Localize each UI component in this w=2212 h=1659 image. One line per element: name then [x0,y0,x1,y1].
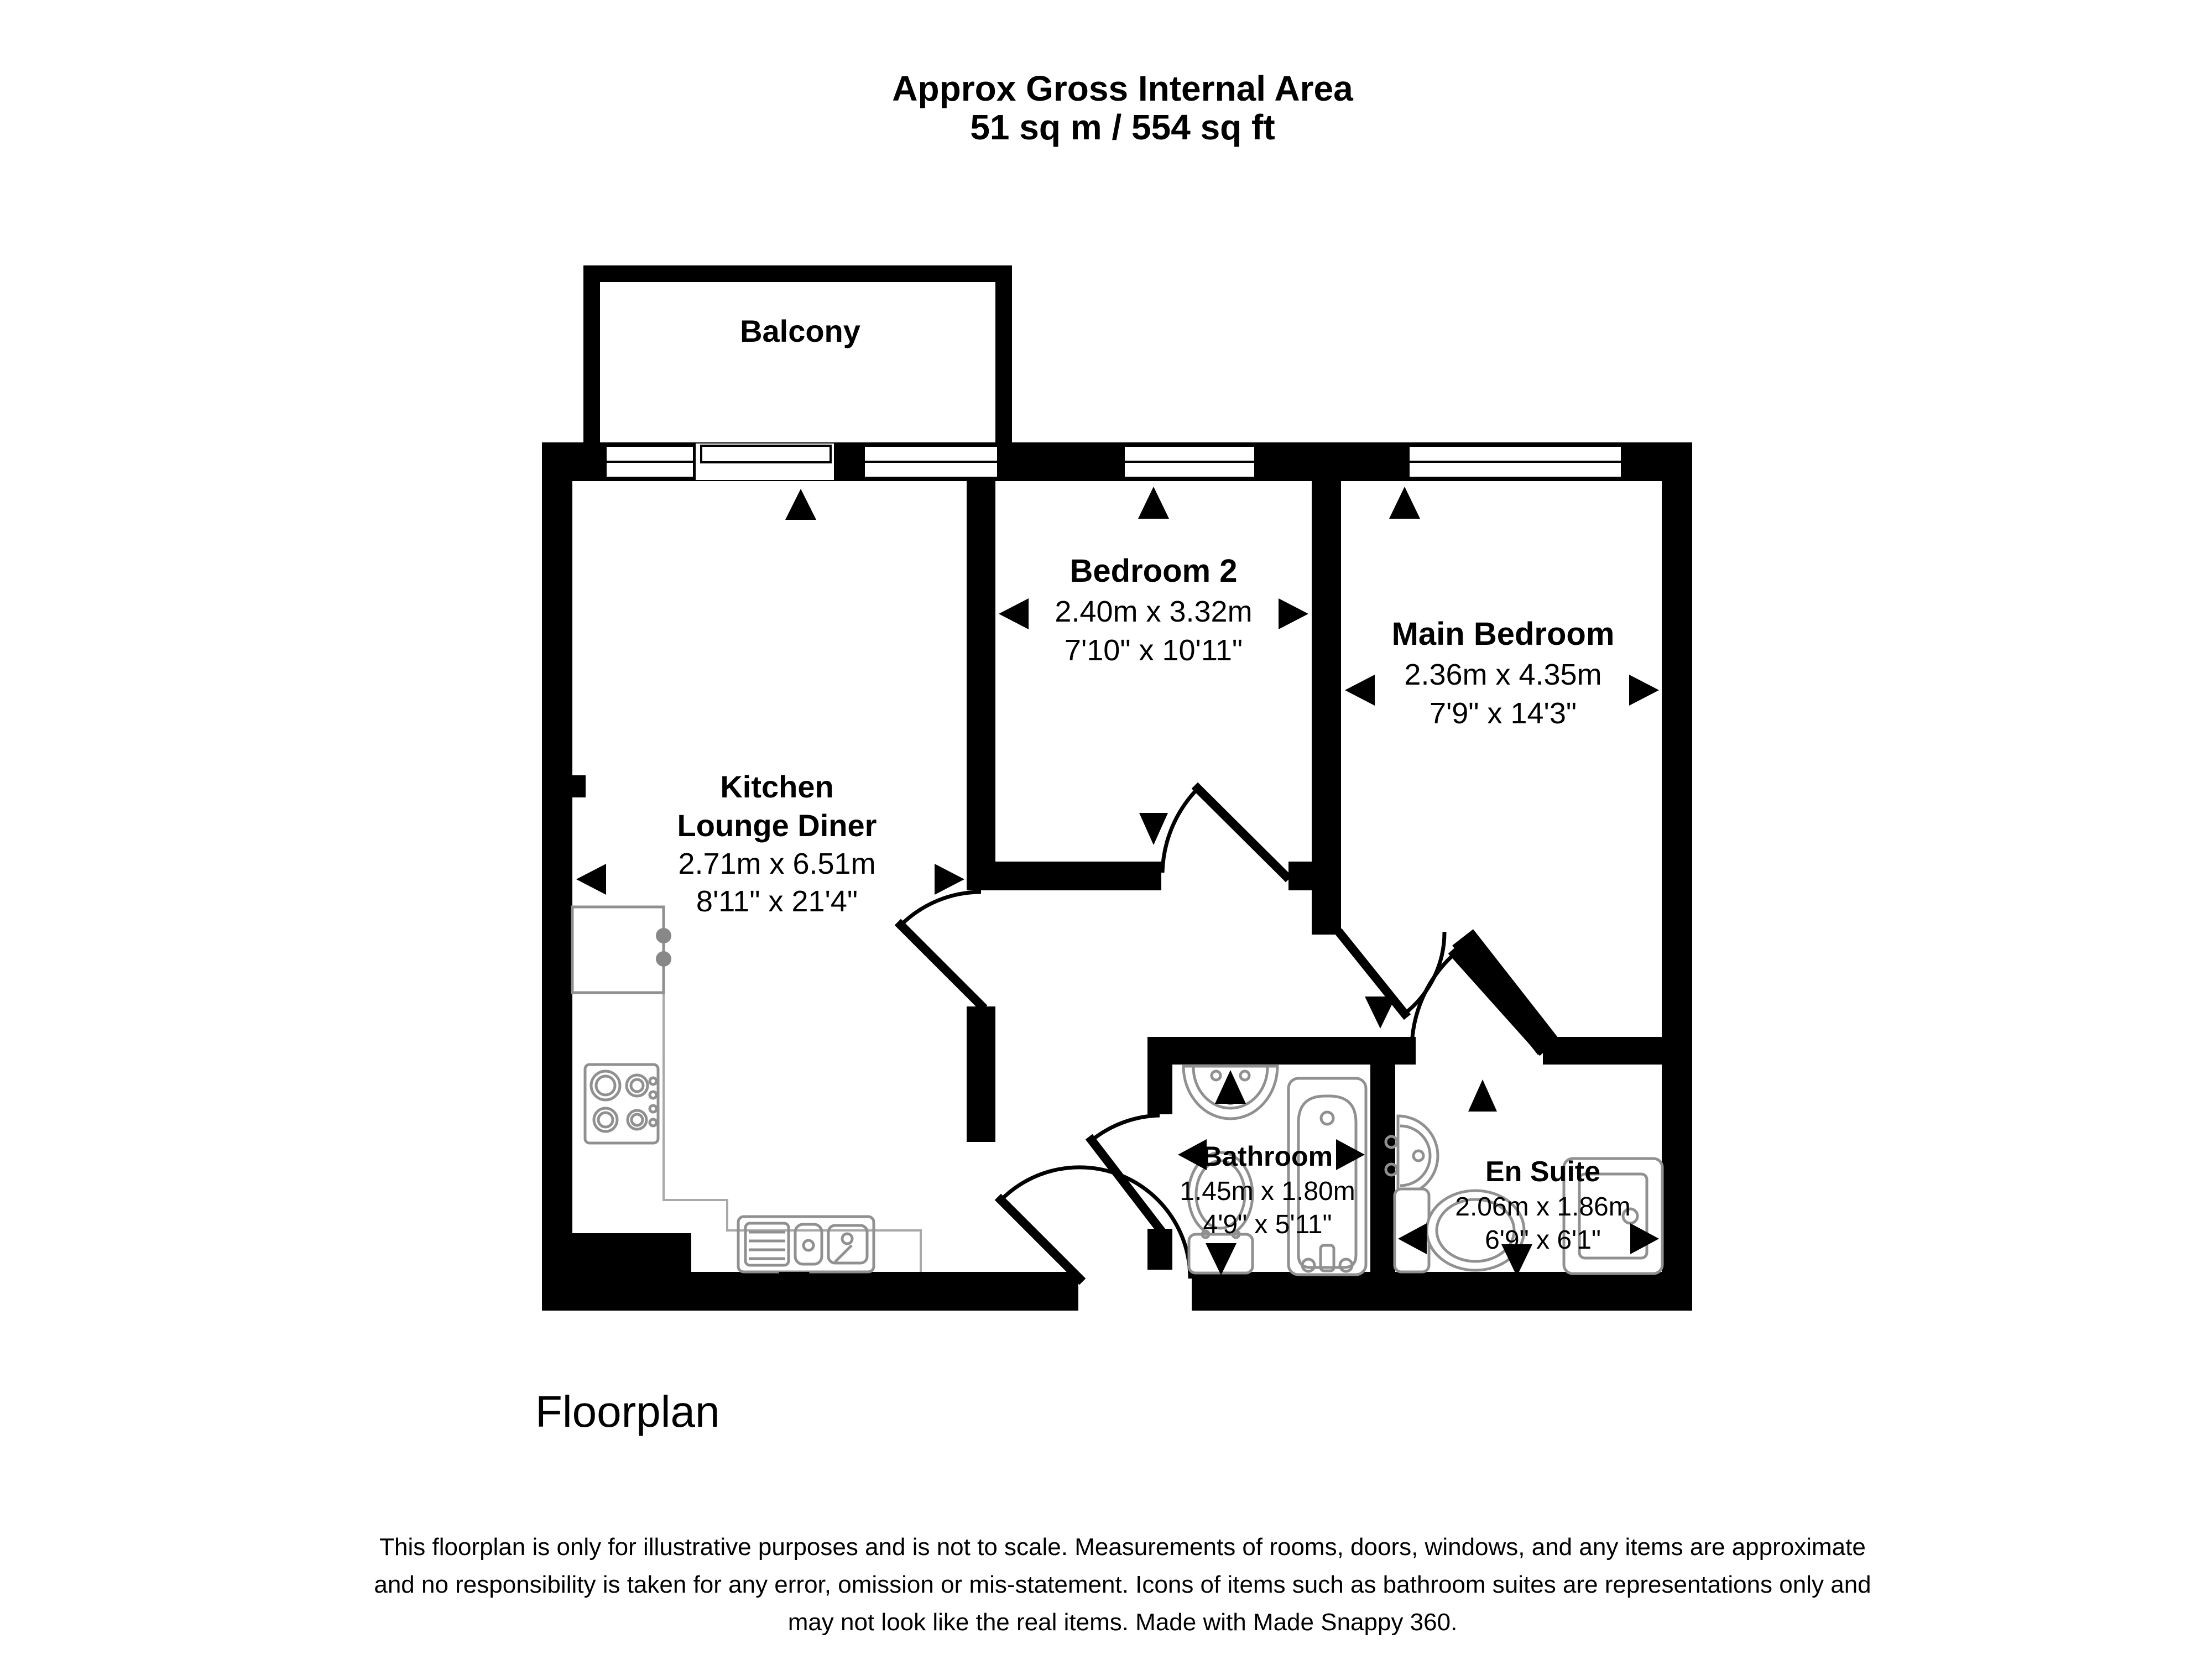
door-leaf [901,925,981,1005]
left-wall-step [572,775,586,797]
kitchen-tall-unit [572,907,664,993]
bedroom2-dim-metric: 2.40m x 3.32m [1055,595,1252,628]
wall-ensuite-top [1543,1037,1692,1065]
wall-nook-diagonal [1463,937,1548,1047]
mainbedroom-label: Main Bedroom [1392,616,1615,652]
door-leaf [1001,1200,1079,1279]
measurement-arrow-left [999,598,1029,629]
kitchen-dim-metric: 2.71m x 6.51m [678,847,875,880]
door-arc [1162,789,1198,873]
kitchen-label-line2: Lounge Diner [677,808,877,843]
outer-wall-right [1662,442,1692,1311]
measurement-arrow-right [1279,598,1308,629]
balcony-wall-top [583,265,1012,282]
disclaimer-line-1: This floorplan is only for illustrative … [379,1533,1866,1561]
kitchen-sink-icon [738,1217,874,1272]
kitchen-label-line1: Kitchen [720,769,833,804]
floorplan-caption: Floorplan [535,1387,720,1436]
ensuite-dim-metric: 2.06m x 1.86m [1455,1192,1630,1222]
outer-wall-bottom-left-block [542,1233,691,1311]
ensuite-dim-imperial: 6'9" x 6'1" [1485,1225,1601,1255]
kitchen-dim-imperial: 8'11" x 21'4" [696,885,858,918]
balcony-wall-right [995,265,1012,442]
bedroom2-dim-imperial: 7'10" x 10'11" [1065,634,1243,667]
footer: Floorplan This floorplan is only for ill… [374,1387,1871,1636]
disclaimer-line-3: may not look like the real items. Made w… [788,1609,1458,1636]
wall-bathroom-ensuite [1370,1037,1395,1280]
direction-arrow-up [785,489,816,520]
outer-wall-left [542,442,572,1311]
door-arc [901,892,981,925]
unit-handle [656,951,671,967]
bathroom-dim-imperial: 4'9" x 5'11" [1203,1210,1332,1239]
unit-handle [656,928,671,943]
balcony-label: Balcony [740,314,860,348]
direction-arrow-up [1389,487,1420,519]
bathroom-label: Bathroom [1202,1141,1333,1172]
hob-icon [585,1065,658,1143]
bathroom-dim-metric: 1.45m x 1.80m [1180,1177,1355,1206]
kitchen-fixtures [572,907,921,1272]
measurement-arrow-right [935,864,964,895]
disclaimer-line-2: and no responsibility is taken for any e… [374,1571,1871,1598]
direction-arrow-down [1365,997,1396,1029]
direction-arrow-down [1139,813,1168,845]
direction-arrow-up [1468,1079,1497,1112]
door-leaf [1198,789,1286,876]
floorplan-svg: Approx Gross Internal Area 51 sq m / 554… [0,0,2212,1659]
direction-arrow-up [1138,487,1169,519]
title-line-1: Approx Gross Internal Area [892,69,1353,108]
wall-bedroom2-bottom-left [995,862,1161,890]
measurement-arrow-left [576,864,606,895]
ensuite-label: En Suite [1485,1156,1600,1188]
title-line-2: 51 sq m / 554 sq ft [970,107,1275,147]
bedroom2-label: Bedroom 2 [1070,553,1238,589]
title-block: Approx Gross Internal Area 51 sq m / 554… [892,69,1353,147]
wall-bedroom2-mainbedroom [1312,476,1341,890]
wall-mainbedroom-west-lower [1312,890,1341,935]
measurement-arrow-right [1629,675,1659,706]
front-door-opening [1078,1270,1192,1313]
mainbedroom-dim-metric: 2.36m x 4.35m [1404,658,1601,691]
wall-lounge-hall-lower [967,1006,995,1142]
measurement-arrow-left [1345,675,1375,706]
mainbedroom-dim-imperial: 7'9" x 14'3" [1430,697,1577,730]
balcony-sliding-door [701,446,831,462]
balcony-wall-left [583,265,600,442]
walls [542,265,1692,1311]
wall-lounge-bedroom2 [967,476,995,890]
